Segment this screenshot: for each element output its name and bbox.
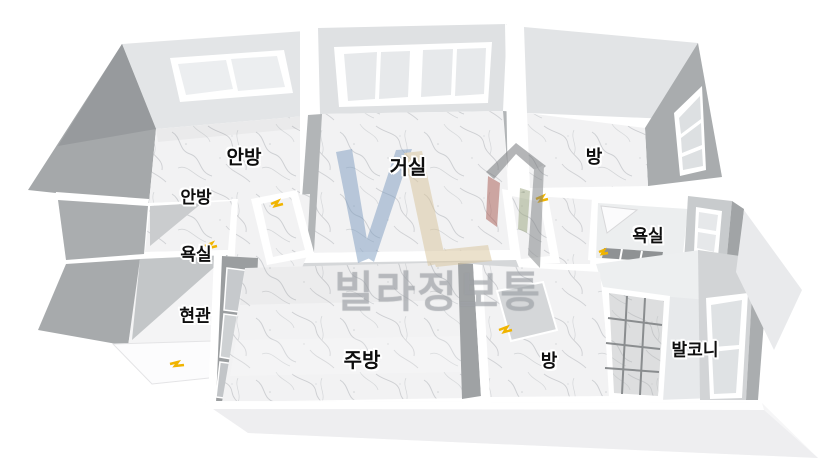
room-label-master-bedroom: 안방 bbox=[227, 147, 262, 168]
room-label-bedroom-bottom: 방 bbox=[541, 351, 558, 371]
floorplan-3d-render bbox=[0, 0, 840, 472]
bedroom-balcony-window bbox=[603, 287, 670, 401]
room-label-master-bath-line1: 안방 bbox=[180, 188, 211, 207]
room-label-bedroom-top-right: 방 bbox=[586, 147, 603, 167]
room-label-entry: 현관 bbox=[179, 306, 210, 325]
room-label-master-bath: 안방 욕실 bbox=[180, 150, 211, 302]
watermark-text: 빌라정보통 bbox=[334, 258, 542, 320]
living-room-floor bbox=[308, 111, 512, 253]
room-label-balcony: 발코니 bbox=[672, 340, 719, 359]
outer-wall-left-mid bbox=[58, 200, 148, 260]
room-label-kitchen: 주방 bbox=[344, 350, 381, 372]
room-label-bath: 욕실 bbox=[632, 226, 663, 245]
room-label-living: 거실 bbox=[390, 157, 427, 179]
front-floor-slab bbox=[205, 401, 818, 458]
floorplan-screenshot: 빌라정보통 안방 거실 방 안방 욕실 욕실 현관 주방 방 발코니 bbox=[0, 0, 840, 472]
room-label-master-bath-line2: 욕실 bbox=[180, 245, 211, 264]
room-master-bedroom bbox=[28, 31, 305, 203]
room-bedroom-top-right bbox=[524, 27, 722, 188]
outer-wall-left-bottom bbox=[38, 259, 142, 346]
